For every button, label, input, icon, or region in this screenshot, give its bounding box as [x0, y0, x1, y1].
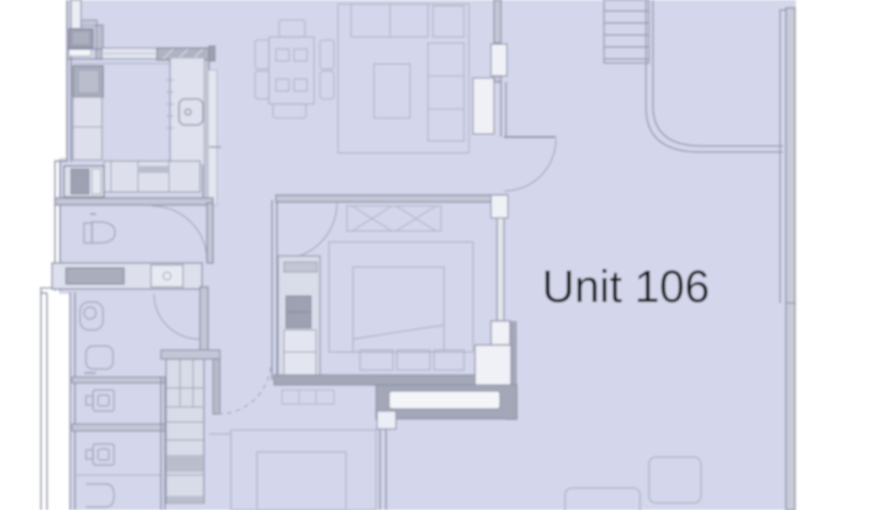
svg-text:Unit 106: Unit 106: [542, 261, 710, 312]
